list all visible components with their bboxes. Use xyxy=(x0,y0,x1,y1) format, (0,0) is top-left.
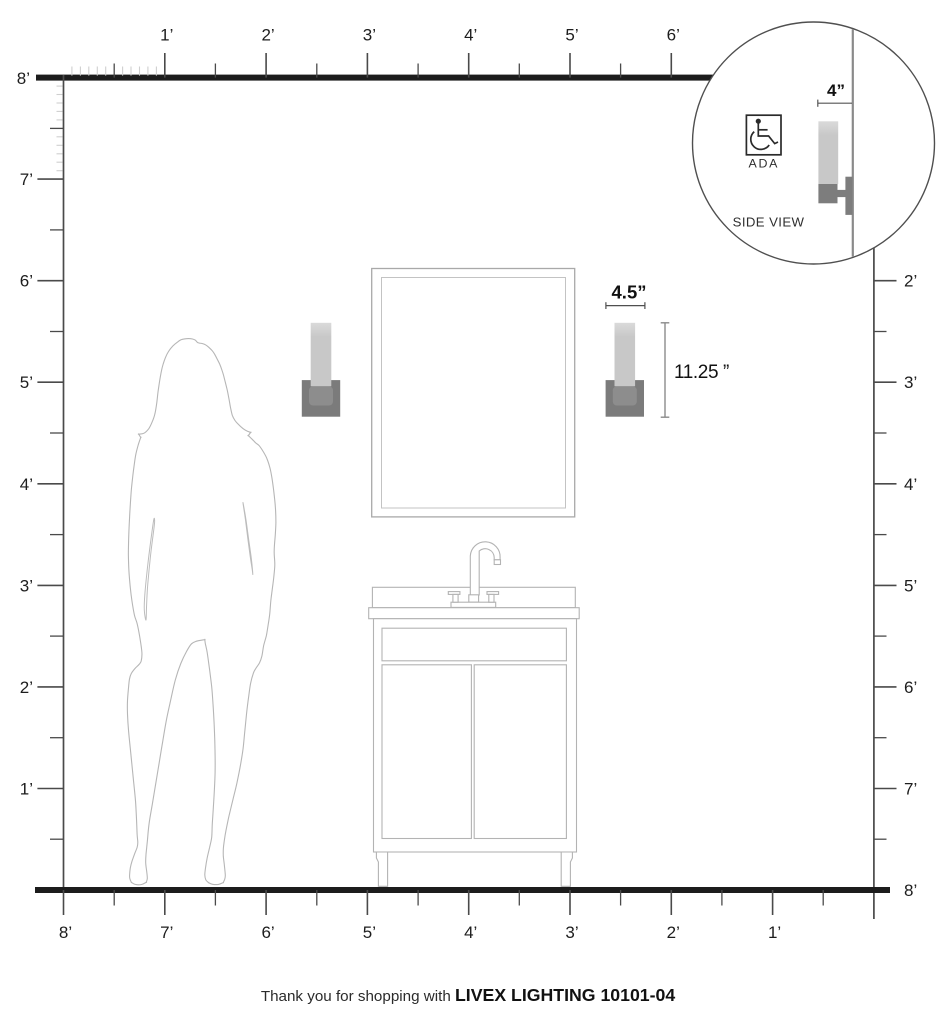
svg-text:4’: 4’ xyxy=(464,26,477,45)
svg-text:2’: 2’ xyxy=(261,26,274,45)
svg-text:11.25 ”: 11.25 ” xyxy=(674,362,729,383)
svg-text:4’: 4’ xyxy=(20,475,33,494)
svg-text:5’: 5’ xyxy=(20,373,33,392)
svg-text:4’: 4’ xyxy=(464,923,477,942)
svg-text:1’: 1’ xyxy=(160,26,173,45)
svg-text:5’: 5’ xyxy=(565,26,578,45)
svg-text:2’: 2’ xyxy=(904,272,917,291)
svg-text:SIDE VIEW: SIDE VIEW xyxy=(733,215,805,230)
svg-text:7’: 7’ xyxy=(904,780,917,799)
svg-text:Thank you for shopping with LI: Thank you for shopping with LIVEX LIGHTI… xyxy=(261,985,676,1005)
svg-text:3’: 3’ xyxy=(565,923,578,942)
svg-text:3’: 3’ xyxy=(20,576,33,595)
svg-text:4’: 4’ xyxy=(904,475,917,494)
svg-text:4.5”: 4.5” xyxy=(612,282,647,303)
svg-text:3’: 3’ xyxy=(363,26,376,45)
svg-text:ADA: ADA xyxy=(749,157,780,171)
svg-text:7’: 7’ xyxy=(20,170,33,189)
svg-text:6’: 6’ xyxy=(667,26,680,45)
svg-text:8’: 8’ xyxy=(904,881,917,900)
svg-text:8’: 8’ xyxy=(17,69,30,88)
svg-text:5’: 5’ xyxy=(904,576,917,595)
svg-text:7’: 7’ xyxy=(160,923,173,942)
svg-text:6’: 6’ xyxy=(904,678,917,697)
svg-text:1’: 1’ xyxy=(768,923,781,942)
svg-text:2’: 2’ xyxy=(667,923,680,942)
svg-text:3’: 3’ xyxy=(904,373,917,392)
svg-text:2’: 2’ xyxy=(20,678,33,697)
svg-text:6’: 6’ xyxy=(20,272,33,291)
svg-text:1’: 1’ xyxy=(20,780,33,799)
svg-text:8’: 8’ xyxy=(59,923,72,942)
svg-text:6’: 6’ xyxy=(261,923,274,942)
svg-text:5’: 5’ xyxy=(363,923,376,942)
svg-text:4”: 4” xyxy=(827,81,845,100)
